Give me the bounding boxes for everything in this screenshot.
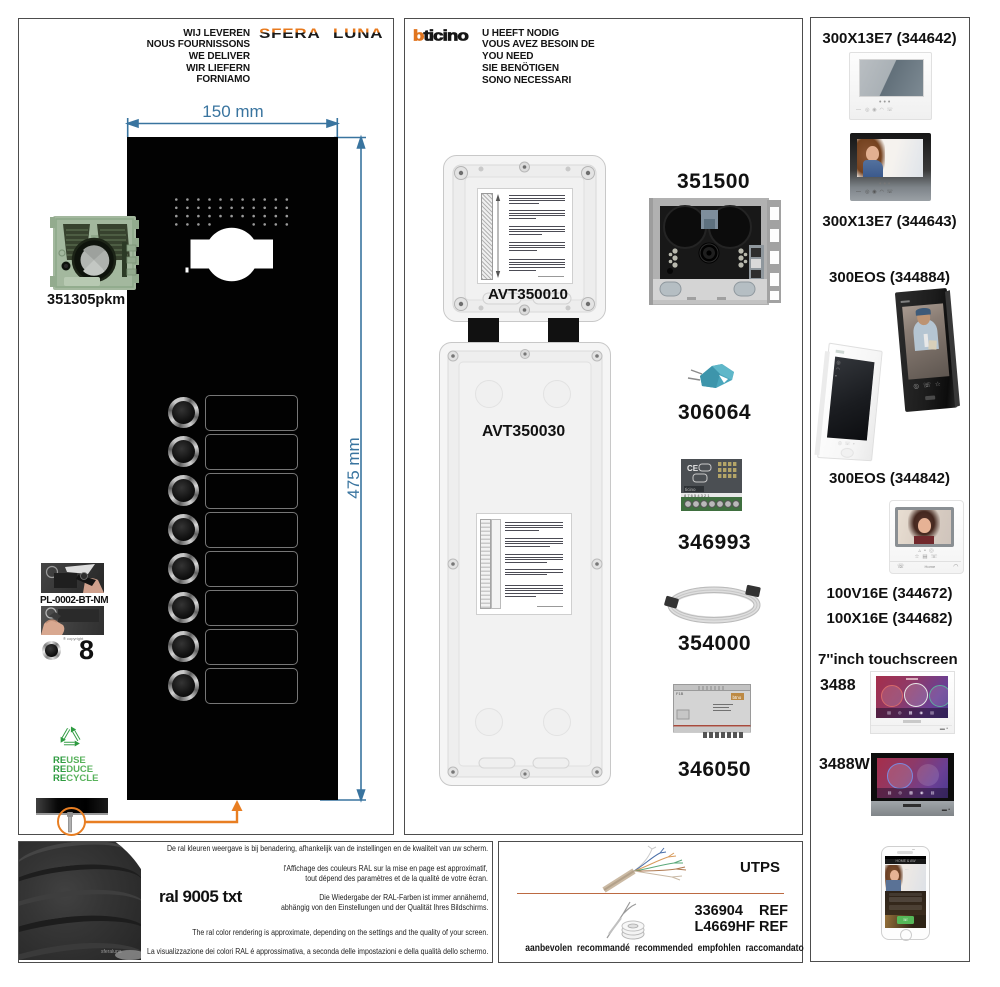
svg-text:ticino: ticino xyxy=(685,487,696,492)
svg-text:ticino: ticino xyxy=(424,27,469,43)
svg-text:8 7 6 5 4 3 2 1: 8 7 6 5 4 3 2 1 xyxy=(684,493,710,498)
svg-text:b: b xyxy=(413,27,424,43)
svg-text:btno: btno xyxy=(733,695,742,700)
svg-text:F1B: F1B xyxy=(676,691,684,696)
svg-text:CE: CE xyxy=(687,464,699,473)
